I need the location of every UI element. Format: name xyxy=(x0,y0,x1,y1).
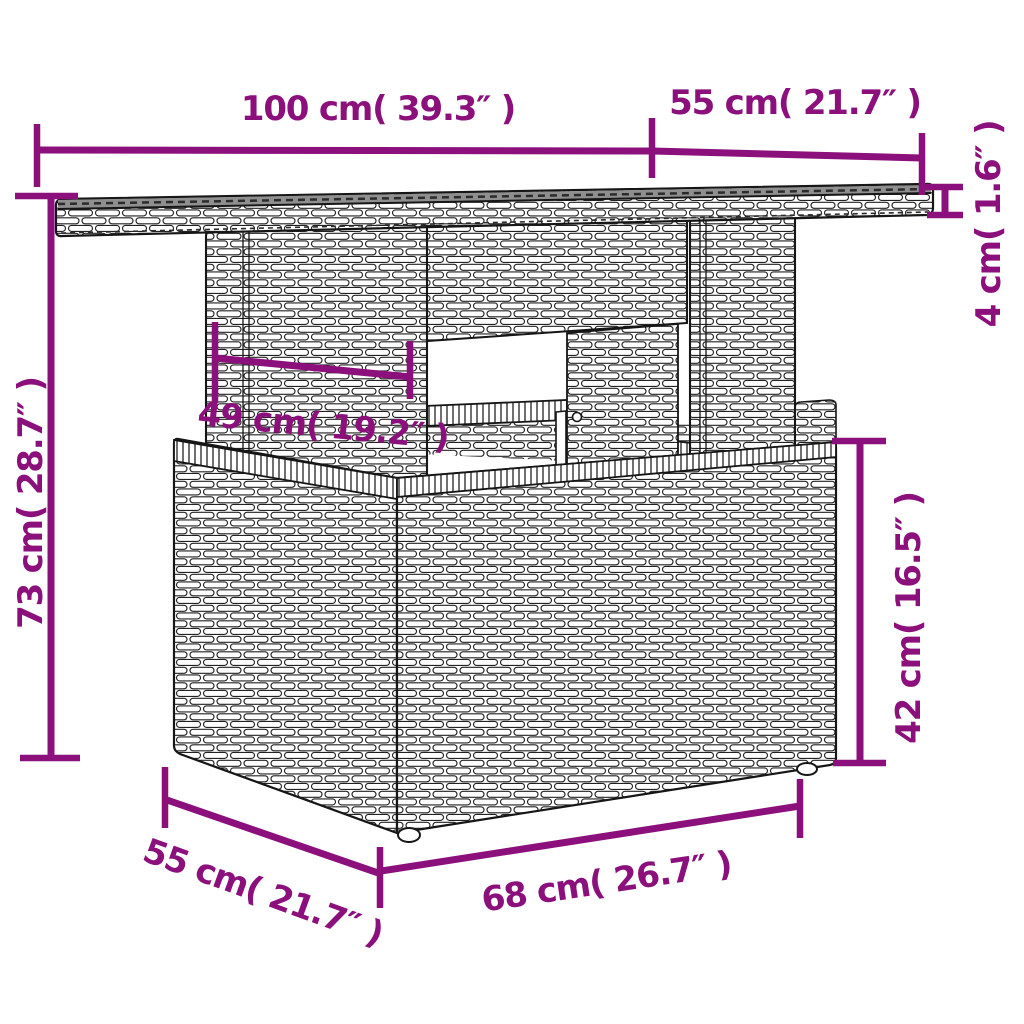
dimension-label-top-depth: 55 cm( 21.7″ ) xyxy=(669,83,921,123)
product-dimension-diagram: 100 cm( 39.3″ ) 55 cm( 21.7″ ) 4 cm( 1.6… xyxy=(0,0,1024,1024)
dimension-label-base-depth: 55 cm( 21.7″ ) xyxy=(138,831,388,955)
inner-side-panel xyxy=(567,324,678,468)
table-illustration xyxy=(56,184,933,842)
inner-support-post xyxy=(556,411,566,469)
base-box-front-face xyxy=(397,443,836,833)
connector-screw xyxy=(573,413,582,422)
base-box xyxy=(174,439,836,842)
base-box-front-foot xyxy=(398,828,420,842)
dimension-line-top-depth xyxy=(652,151,922,158)
dimension-label-base-height: 42 cm( 16.5″ ) xyxy=(889,492,929,744)
dimension-label-top-thickness: 4 cm( 1.6″ ) xyxy=(969,121,1009,328)
dimension-label-base-width: 68 cm( 26.7″ ) xyxy=(479,844,734,921)
dimension-line-top-width xyxy=(37,150,652,151)
base-box-left-face xyxy=(174,439,397,833)
diagram-svg: 100 cm( 39.3″ ) 55 cm( 21.7″ ) 4 cm( 1.6… xyxy=(0,0,1024,1024)
dimension-label-top-width: 100 cm( 39.3″ ) xyxy=(241,89,515,129)
base-box-right-foot xyxy=(797,763,817,775)
back-apron-panel xyxy=(427,218,687,341)
dimension-label-total-height: 73 cm( 28.7″ ) xyxy=(11,377,51,629)
